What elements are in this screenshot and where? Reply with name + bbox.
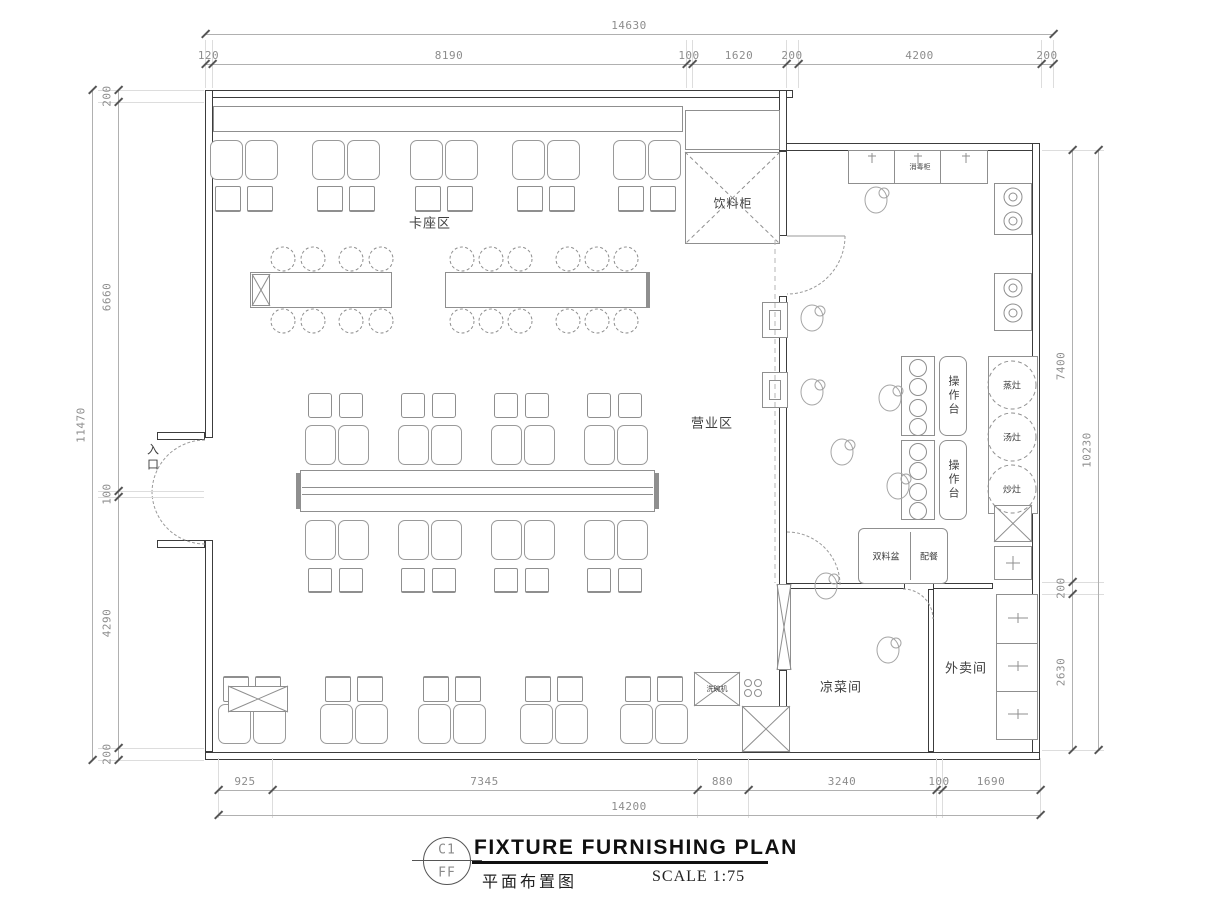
cold-dish-room-label: 凉菜间	[820, 677, 862, 696]
stove-1-label: 蒸灶	[1003, 379, 1021, 392]
dim-line-top-total	[205, 34, 1053, 35]
dim-value: 10230	[1081, 432, 1094, 468]
dim-value: 4290	[101, 608, 114, 637]
dining-area-label: 营业区	[691, 413, 733, 432]
dim-value: 8190	[435, 49, 464, 62]
drawing-subtitle-cn: 平面布置图	[482, 868, 577, 892]
dim-value: 925	[234, 775, 255, 788]
dim-value: 100	[678, 49, 699, 62]
dim-value: 100	[928, 775, 949, 788]
dim-line-bottom-total	[218, 815, 1040, 816]
dim-line-top-chain	[205, 64, 1053, 65]
sink-counter-left-label: 双料盆	[872, 550, 899, 563]
entrance-label: 入口	[145, 443, 162, 473]
dim-value: 3240	[828, 775, 857, 788]
dim-value: 11470	[75, 407, 88, 443]
drawing-title: FIXTURE FURNISHING PLAN	[474, 836, 798, 860]
drawing-ref-sheet: FF	[438, 866, 456, 881]
disinfect-cabinet-label: 消毒柜	[910, 162, 931, 172]
dim-line-left-chain	[118, 90, 119, 760]
witness	[98, 102, 204, 103]
dim-value: 200	[1055, 577, 1068, 598]
dim-line-left-total	[92, 90, 93, 760]
witness	[98, 491, 204, 492]
stove-2-label: 汤灶	[1003, 431, 1021, 444]
dim-value: 200	[101, 85, 114, 106]
booth-area-label: 卡座区	[409, 213, 451, 232]
takeout-room-label: 外卖间	[945, 658, 987, 677]
witness	[98, 497, 204, 498]
dim-value: 880	[712, 775, 733, 788]
dim-value: 14200	[611, 800, 647, 813]
plan-linework	[0, 0, 1208, 906]
witness	[98, 748, 204, 749]
dim-value: 4200	[905, 49, 934, 62]
dim-value: 1690	[977, 775, 1006, 788]
drink-cabinet-label: 饮料柜	[713, 195, 752, 212]
dim-value: 100	[101, 483, 114, 504]
witness	[98, 760, 204, 761]
dim-value: 7345	[470, 775, 499, 788]
dim-line-right-chain	[1072, 150, 1073, 750]
dim-value: 14630	[611, 19, 647, 32]
dim-line-right-total	[1098, 150, 1099, 750]
drawing-ref-number: C1	[438, 843, 456, 858]
dim-value: 1620	[725, 49, 754, 62]
op-counter-2-label: 操作台	[945, 459, 961, 501]
dim-value: 120	[198, 49, 219, 62]
dim-value: 200	[101, 743, 114, 764]
witness	[98, 90, 204, 91]
sink-counter-right-label: 配餐	[920, 550, 938, 563]
dim-value: 6660	[101, 282, 114, 311]
dim-value: 200	[1036, 49, 1057, 62]
dim-value: 2630	[1055, 658, 1068, 687]
dim-value: 200	[781, 49, 802, 62]
dim-value: 7400	[1055, 352, 1068, 381]
floor-plan-canvas: 入口 卡座区 营业区 饮料柜 凉菜间 外卖间 操作台 操作台 蒸灶 汤灶 炒灶 …	[0, 0, 1208, 906]
op-counter-1-label: 操作台	[945, 375, 961, 417]
stove-3-label: 炒灶	[1003, 483, 1021, 496]
drawing-scale: SCALE 1:75	[652, 868, 745, 886]
dishwasher-label: 洗碗机	[707, 684, 728, 694]
dim-line-bottom-chain	[218, 790, 1040, 791]
title-underline	[472, 861, 768, 864]
